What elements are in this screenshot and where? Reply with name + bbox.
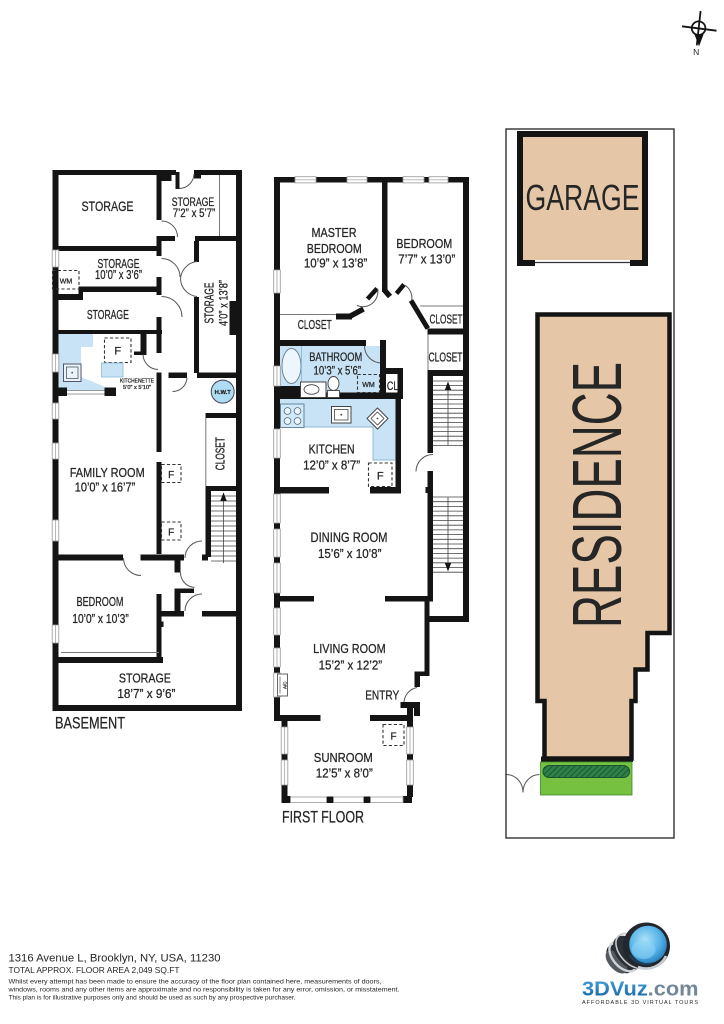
svg-text:BEDROOM: BEDROOM [77, 594, 124, 609]
svg-text:GARAGE: GARAGE [526, 177, 640, 218]
svg-text:BEDROOM: BEDROOM [307, 241, 362, 256]
svg-text:STORAGE: STORAGE [119, 671, 171, 686]
svg-text:CL: CL [387, 381, 399, 393]
svg-text:F: F [390, 732, 396, 743]
svg-text:TOTAL APPROX. FLOOR AREA 2,049: TOTAL APPROX. FLOOR AREA 2,049 SQ.FT [9, 966, 180, 975]
svg-text:MASTER: MASTER [312, 225, 357, 240]
svg-text:SUNROOM: SUNROOM [314, 750, 373, 765]
svg-text:Whilst every attempt has been: Whilst every attempt has been made to en… [9, 979, 382, 986]
svg-text:A/C: A/C [283, 681, 288, 689]
svg-text:FAMILY ROOM: FAMILY ROOM [70, 465, 145, 480]
svg-text:AFFORDABLE 3D VIRTUAL TOURS: AFFORDABLE 3D VIRTUAL TOURS [582, 1000, 699, 1006]
svg-text:F: F [377, 471, 384, 483]
svg-text:CLOSET: CLOSET [429, 351, 463, 365]
svg-text:BASEMENT: BASEMENT [55, 714, 125, 733]
svg-text:5’0” x 5’10”: 5’0” x 5’10” [123, 385, 151, 391]
svg-text:15’2” x 12’2”: 15’2” x 12’2” [319, 659, 383, 673]
svg-text:CLOSET: CLOSET [213, 437, 227, 470]
svg-text:3DVuz.com: 3DVuz.com [582, 978, 699, 1001]
svg-text:BATHROOM: BATHROOM [309, 350, 362, 364]
svg-text:LIVING ROOM: LIVING ROOM [313, 641, 386, 656]
svg-text:H.W.T: H.W.T [215, 390, 232, 396]
svg-text:10’3” x 5’6”: 10’3” x 5’6” [314, 365, 362, 377]
svg-text:ENTRY: ENTRY [365, 687, 399, 702]
svg-text:12’0” x 8’7”: 12’0” x 8’7” [303, 459, 360, 473]
svg-text:10’0” x 16’7”: 10’0” x 16’7” [75, 481, 136, 495]
svg-text:KITCHENETTE: KITCHENETTE [120, 379, 154, 385]
svg-text:10’0” x 3’6”: 10’0” x 3’6” [95, 268, 142, 282]
svg-text:windows, rooms and any other i: windows, rooms and any other items are a… [7, 987, 399, 994]
svg-text:CLOSET: CLOSET [430, 313, 463, 327]
svg-text:15’6” x 10’8”: 15’6” x 10’8” [318, 547, 382, 561]
svg-text:F: F [168, 470, 174, 481]
svg-text:10’9” x 13’8”: 10’9” x 13’8” [304, 256, 368, 270]
svg-text:CLOSET: CLOSET [298, 318, 332, 332]
svg-text:KITCHEN: KITCHEN [309, 441, 355, 456]
svg-text:10’0” x 10’3”: 10’0” x 10’3” [72, 612, 129, 626]
svg-text:This plan is for illustrative: This plan is for illustrative purposes o… [9, 995, 296, 1002]
svg-text:1316 Avenue L, Brooklyn, NY, U: 1316 Avenue L, Brooklyn, NY, USA, 11230 [9, 953, 221, 965]
svg-text:BEDROOM: BEDROOM [396, 236, 452, 251]
svg-text:18’7” x 9’6”: 18’7” x 9’6” [117, 687, 175, 701]
svg-text:WM: WM [362, 382, 375, 389]
svg-text:WM: WM [60, 279, 73, 286]
svg-text:12’5” x 8’0”: 12’5” x 8’0” [316, 767, 373, 781]
svg-text:F: F [114, 346, 121, 358]
svg-text:STORAGE: STORAGE [202, 282, 217, 323]
svg-text:RESIDENCE: RESIDENCE [558, 362, 636, 628]
svg-text:STORAGE: STORAGE [82, 199, 134, 214]
svg-text:4’0” x 13’8”: 4’0” x 13’8” [216, 280, 230, 326]
svg-text:F: F [168, 528, 174, 539]
svg-text:7’7” x 13’0”: 7’7” x 13’0” [398, 253, 455, 267]
svg-text:STORAGE: STORAGE [87, 307, 129, 322]
svg-text:DINING ROOM: DINING ROOM [311, 530, 388, 545]
svg-text:7’2” x 5’7”: 7’2” x 5’7” [173, 206, 216, 220]
svg-text:FIRST FLOOR: FIRST FLOOR [282, 809, 364, 827]
svg-text:N: N [693, 47, 699, 57]
